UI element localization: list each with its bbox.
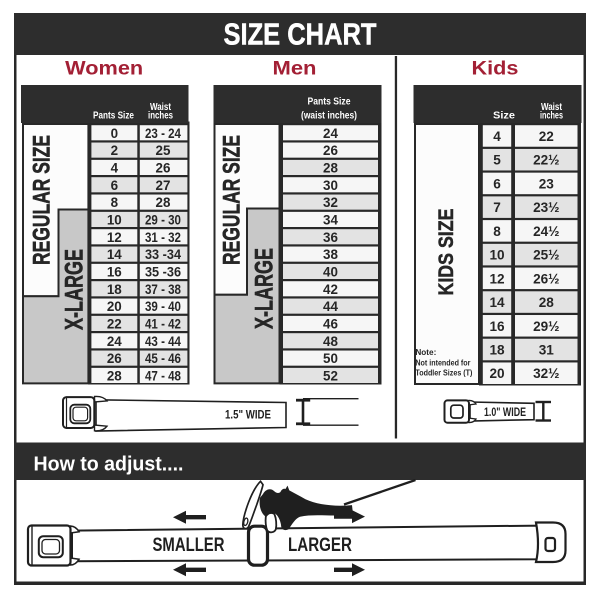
- svg-text:31: 31: [539, 343, 555, 358]
- svg-text:35 -36: 35 -36: [145, 264, 181, 279]
- svg-text:33 -34: 33 -34: [145, 247, 182, 262]
- svg-text:44: 44: [323, 299, 338, 314]
- svg-text:SIZE CHART: SIZE CHART: [224, 17, 377, 52]
- svg-text:5: 5: [493, 153, 501, 168]
- svg-text:32½: 32½: [533, 366, 559, 381]
- svg-text:14: 14: [107, 247, 122, 262]
- svg-text:23: 23: [539, 176, 555, 191]
- svg-text:KIDS SIZE: KIDS SIZE: [435, 208, 458, 295]
- svg-text:20: 20: [107, 299, 122, 314]
- svg-text:18: 18: [489, 343, 505, 358]
- svg-text:31 - 32: 31 - 32: [145, 230, 181, 245]
- svg-text:(waist inches): (waist inches): [301, 111, 357, 122]
- svg-text:Pants Size: Pants Size: [93, 111, 134, 122]
- svg-text:6: 6: [111, 178, 118, 193]
- svg-text:26: 26: [323, 143, 338, 158]
- svg-text:26: 26: [107, 351, 122, 366]
- svg-text:Not intended for: Not intended for: [415, 358, 471, 367]
- svg-text:30: 30: [323, 178, 338, 193]
- svg-text:10: 10: [107, 212, 122, 227]
- svg-text:How to adjust....: How to adjust....: [34, 453, 184, 476]
- svg-text:46: 46: [323, 316, 338, 331]
- svg-text:REGULAR SIZE: REGULAR SIZE: [219, 135, 246, 265]
- svg-text:LARGER: LARGER: [288, 535, 352, 556]
- svg-text:39 - 40: 39 - 40: [145, 299, 181, 314]
- svg-text:23 - 24: 23 - 24: [145, 126, 181, 141]
- svg-text:38: 38: [323, 247, 338, 262]
- svg-text:24: 24: [107, 334, 122, 349]
- svg-text:12: 12: [489, 271, 505, 286]
- svg-text:24½: 24½: [533, 224, 559, 239]
- svg-text:45 - 46: 45 - 46: [145, 351, 181, 366]
- svg-text:16: 16: [107, 264, 122, 279]
- svg-text:Note:: Note:: [415, 348, 436, 357]
- svg-text:6: 6: [493, 176, 501, 191]
- svg-text:4: 4: [111, 160, 119, 175]
- svg-text:1.5" WIDE: 1.5" WIDE: [225, 408, 271, 422]
- svg-text:22: 22: [107, 316, 122, 331]
- svg-text:0: 0: [111, 126, 118, 141]
- svg-text:8: 8: [493, 224, 501, 239]
- svg-text:7: 7: [493, 200, 501, 215]
- svg-text:43 - 44: 43 - 44: [145, 334, 181, 349]
- svg-text:X-LARGE: X-LARGE: [61, 249, 89, 330]
- svg-text:29 - 30: 29 - 30: [145, 212, 181, 227]
- svg-text:X-LARGE: X-LARGE: [250, 248, 278, 329]
- svg-text:Men: Men: [273, 58, 317, 80]
- svg-text:47 - 48: 47 - 48: [145, 368, 181, 383]
- svg-text:16: 16: [489, 319, 505, 334]
- svg-text:50: 50: [323, 351, 338, 366]
- svg-text:Kids: Kids: [472, 58, 519, 80]
- svg-text:Women: Women: [65, 58, 143, 80]
- svg-text:23½: 23½: [533, 200, 559, 215]
- svg-text:inches: inches: [148, 111, 173, 122]
- svg-text:42: 42: [323, 282, 338, 297]
- svg-text:28: 28: [323, 160, 338, 175]
- svg-text:28: 28: [107, 368, 122, 383]
- svg-text:26½: 26½: [533, 271, 559, 286]
- svg-text:Toddler Sizes (T): Toddler Sizes (T): [415, 369, 472, 378]
- svg-text:36: 36: [323, 230, 338, 245]
- svg-text:27: 27: [156, 178, 171, 193]
- svg-text:25½: 25½: [533, 248, 559, 263]
- svg-text:2: 2: [111, 143, 118, 158]
- svg-text:Size: Size: [493, 111, 515, 122]
- svg-text:inches: inches: [540, 111, 563, 122]
- svg-text:18: 18: [107, 282, 122, 297]
- svg-text:22: 22: [539, 129, 555, 144]
- svg-text:20: 20: [489, 366, 504, 381]
- svg-text:41 - 42: 41 - 42: [145, 316, 181, 331]
- svg-text:26: 26: [156, 160, 171, 175]
- svg-text:12: 12: [107, 230, 122, 245]
- svg-text:1.0" WIDE: 1.0" WIDE: [484, 405, 526, 419]
- svg-text:29½: 29½: [533, 319, 559, 334]
- svg-text:32: 32: [323, 195, 338, 210]
- svg-text:4: 4: [493, 129, 501, 144]
- svg-text:37 - 38: 37 - 38: [145, 282, 181, 297]
- svg-text:34: 34: [323, 212, 338, 227]
- svg-text:REGULAR SIZE: REGULAR SIZE: [28, 135, 55, 265]
- svg-text:24: 24: [323, 126, 338, 141]
- svg-text:52: 52: [323, 368, 338, 383]
- svg-text:14: 14: [489, 295, 505, 310]
- svg-text:10: 10: [489, 248, 504, 263]
- svg-text:40: 40: [323, 264, 338, 279]
- svg-text:28: 28: [539, 295, 555, 310]
- svg-text:Pants Size: Pants Size: [308, 97, 351, 108]
- svg-text:25: 25: [156, 143, 171, 158]
- svg-text:8: 8: [111, 195, 119, 210]
- svg-text:22½: 22½: [533, 153, 559, 168]
- svg-text:48: 48: [323, 334, 338, 349]
- svg-text:28: 28: [156, 195, 171, 210]
- svg-text:SMALLER: SMALLER: [153, 535, 225, 556]
